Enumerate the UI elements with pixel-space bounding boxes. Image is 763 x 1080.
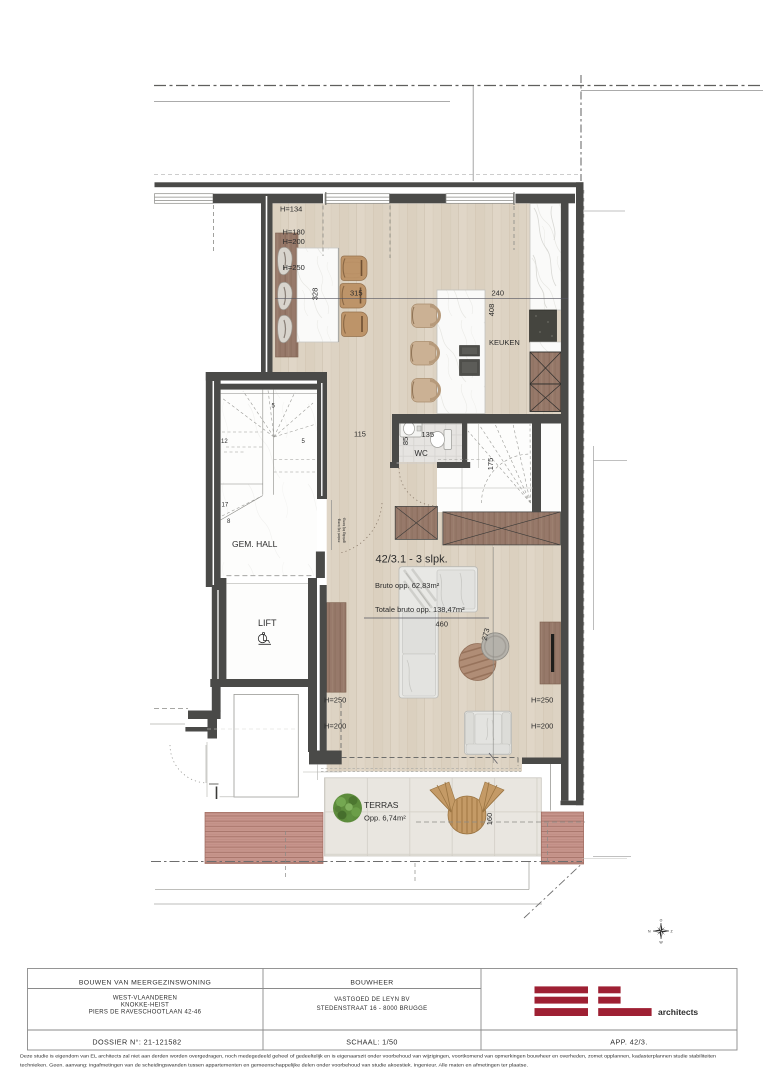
svg-text:H=250: H=250 bbox=[531, 696, 553, 705]
svg-text:315: 315 bbox=[350, 289, 363, 298]
svg-text:SCHAAL: 1/50: SCHAAL: 1/50 bbox=[346, 1038, 398, 1047]
svg-text:BOUWHEER: BOUWHEER bbox=[350, 980, 393, 987]
svg-text:STEDENSTRAAT 16 - 8000 BRUGG: STEDENSTRAAT 16 - 8000 BRUGGE bbox=[317, 1006, 428, 1012]
svg-text:Opp. 6,74m²: Opp. 6,74m² bbox=[364, 814, 406, 823]
svg-text:DOSSIER N°: 21-121582: DOSSIER N°: 21-121582 bbox=[92, 1038, 181, 1047]
svg-text:H=200: H=200 bbox=[531, 722, 553, 731]
svg-text:H=134: H=134 bbox=[280, 205, 302, 214]
svg-text:Deze studie is eigendom van EL: Deze studie is eigendom van EL architect… bbox=[20, 1054, 716, 1060]
svg-text:408: 408 bbox=[487, 304, 496, 317]
svg-text:H=250: H=250 bbox=[283, 263, 305, 272]
svg-text:LIFT: LIFT bbox=[258, 618, 277, 628]
svg-text:135: 135 bbox=[422, 430, 435, 439]
svg-text:42/3.1 - 3 slpk.: 42/3.1 - 3 slpk. bbox=[376, 554, 448, 566]
svg-text:WC: WC bbox=[415, 449, 429, 458]
svg-text:H=180: H=180 bbox=[283, 228, 305, 237]
svg-text:240: 240 bbox=[492, 289, 505, 298]
svg-text:TERRAS: TERRAS bbox=[364, 800, 399, 810]
svg-text:Bruto opp. 62,83m²: Bruto opp. 62,83m² bbox=[375, 581, 440, 590]
svg-text:GEM. HALL: GEM. HALL bbox=[232, 539, 278, 549]
svg-text:WEST-VLAANDEREN: WEST-VLAANDEREN bbox=[113, 996, 177, 1002]
svg-text:160: 160 bbox=[485, 813, 494, 826]
svg-text:H=250: H=250 bbox=[324, 696, 346, 705]
svg-text:175: 175 bbox=[486, 458, 495, 471]
svg-text:technieken. Geen. aanvang: ing: technieken. Geen. aanvang: ingafmetingen… bbox=[20, 1063, 528, 1069]
svg-text:Totale bruto opp. 138,47m²: Totale bruto opp. 138,47m² bbox=[375, 605, 465, 614]
svg-text:12: 12 bbox=[221, 439, 228, 445]
svg-text:VASTGOED DE LEYN BV: VASTGOED DE LEYN BV bbox=[334, 997, 410, 1003]
svg-text:17: 17 bbox=[222, 503, 229, 509]
svg-text:115: 115 bbox=[354, 430, 366, 439]
svg-text:APP. 42/3.: APP. 42/3. bbox=[610, 1038, 647, 1047]
svg-text:H=200: H=200 bbox=[324, 722, 346, 731]
svg-text:328: 328 bbox=[311, 288, 320, 301]
svg-text:KEUKEN: KEUKEN bbox=[489, 338, 520, 347]
svg-text:O: O bbox=[660, 919, 663, 923]
svg-text:enkel bij toeg.: enkel bij toeg. bbox=[336, 518, 341, 543]
svg-text:H=200: H=200 bbox=[283, 237, 305, 246]
svg-text:geldig bij toeg.: geldig bij toeg. bbox=[341, 517, 346, 543]
svg-text:460: 460 bbox=[436, 620, 449, 629]
svg-text:architects: architects bbox=[658, 1007, 698, 1017]
svg-text:85: 85 bbox=[401, 437, 410, 445]
svg-text:PIERS DE RAVESCHOOTLAAN 42-46: PIERS DE RAVESCHOOTLAAN 42-46 bbox=[89, 1010, 202, 1016]
svg-text:KNOKKE-HEIST: KNOKKE-HEIST bbox=[121, 1003, 169, 1009]
svg-text:BOUWEN VAN MEERGEZINSWONING: BOUWEN VAN MEERGEZINSWONING bbox=[79, 980, 211, 987]
